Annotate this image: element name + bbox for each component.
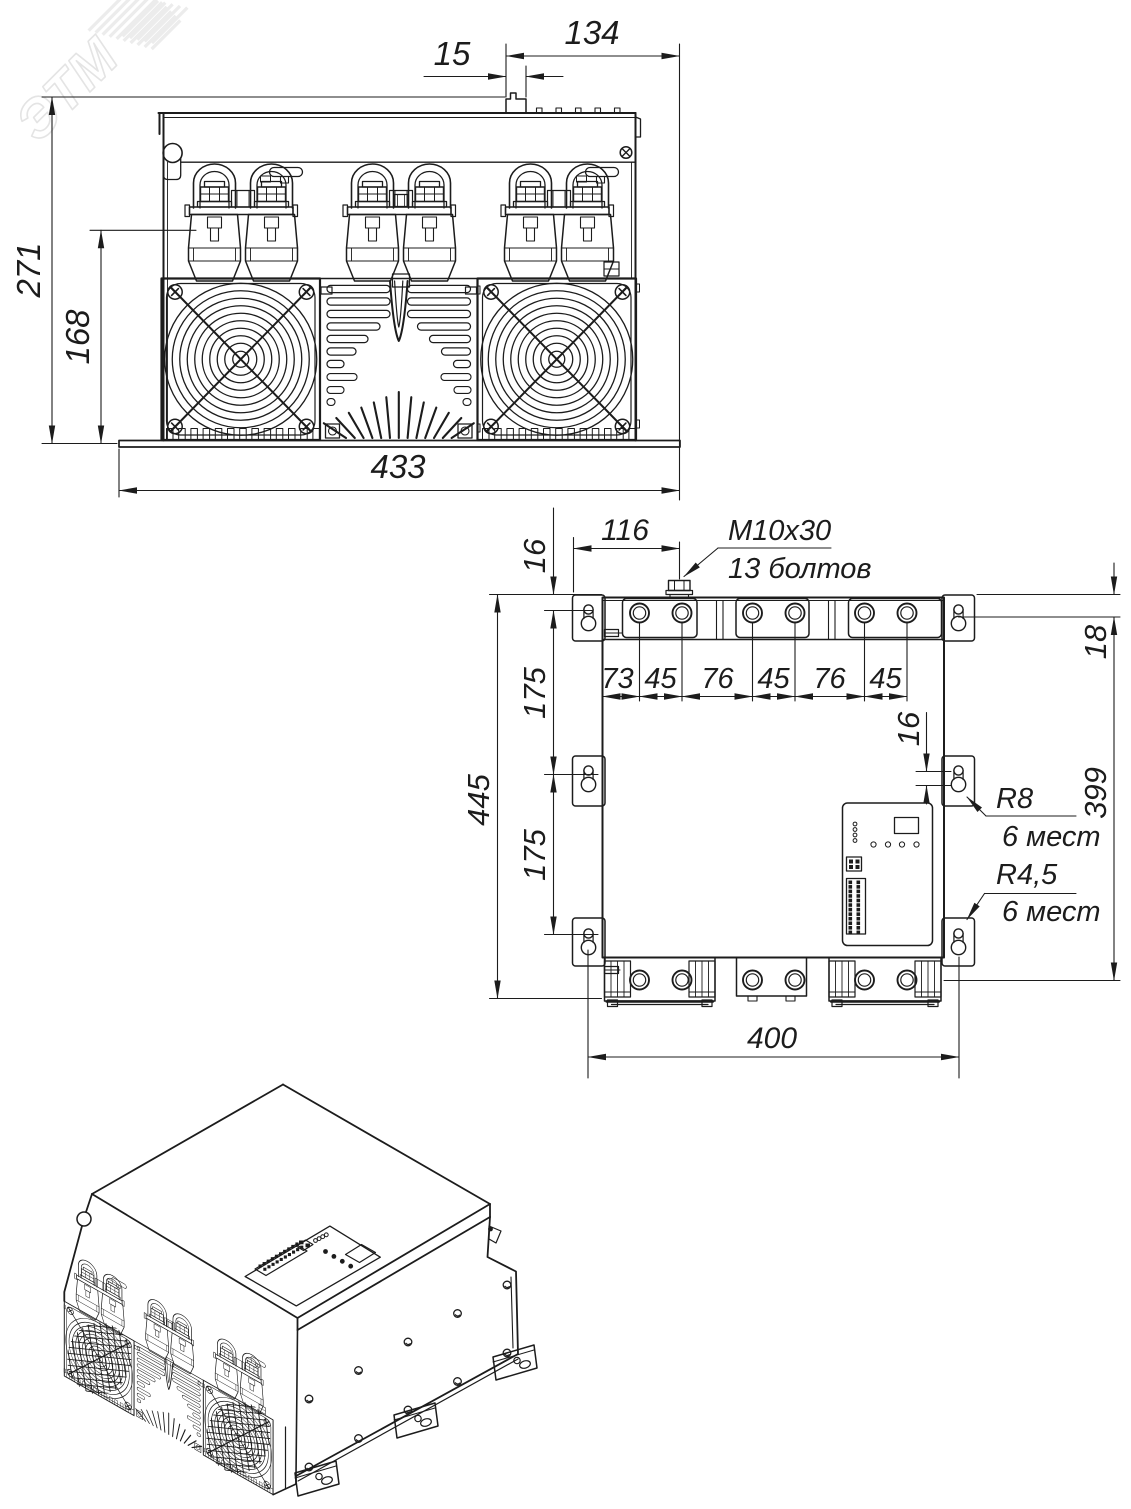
svg-text:45: 45 bbox=[644, 663, 677, 695]
svg-text:18: 18 bbox=[1078, 624, 1113, 659]
svg-text:433: 433 bbox=[370, 448, 426, 485]
svg-text:400: 400 bbox=[747, 1022, 797, 1055]
svg-text:16: 16 bbox=[891, 711, 926, 746]
svg-text:45: 45 bbox=[757, 663, 790, 695]
svg-text:R8: R8 bbox=[996, 783, 1033, 815]
svg-text:134: 134 bbox=[564, 14, 619, 51]
svg-text:175: 175 bbox=[517, 828, 552, 880]
svg-text:6 мест: 6 мест bbox=[1002, 821, 1101, 853]
svg-text:R4,5: R4,5 bbox=[996, 859, 1058, 891]
svg-text:175: 175 bbox=[517, 666, 552, 718]
svg-text:76: 76 bbox=[701, 663, 734, 695]
svg-text:45: 45 bbox=[869, 663, 902, 695]
svg-text:168: 168 bbox=[59, 309, 96, 365]
svg-text:399: 399 bbox=[1078, 767, 1113, 819]
svg-text:16: 16 bbox=[517, 538, 552, 573]
svg-text:73: 73 bbox=[601, 663, 633, 695]
svg-text:15: 15 bbox=[434, 35, 471, 72]
svg-text:445: 445 bbox=[461, 773, 496, 825]
svg-text:271: 271 bbox=[10, 242, 47, 298]
svg-text:13 болтов: 13 болтов bbox=[728, 553, 872, 585]
svg-text:116: 116 bbox=[601, 514, 649, 547]
svg-text:6 мест: 6 мест bbox=[1002, 896, 1101, 928]
svg-text:76: 76 bbox=[813, 663, 846, 695]
svg-text:M10x30: M10x30 bbox=[728, 515, 831, 547]
